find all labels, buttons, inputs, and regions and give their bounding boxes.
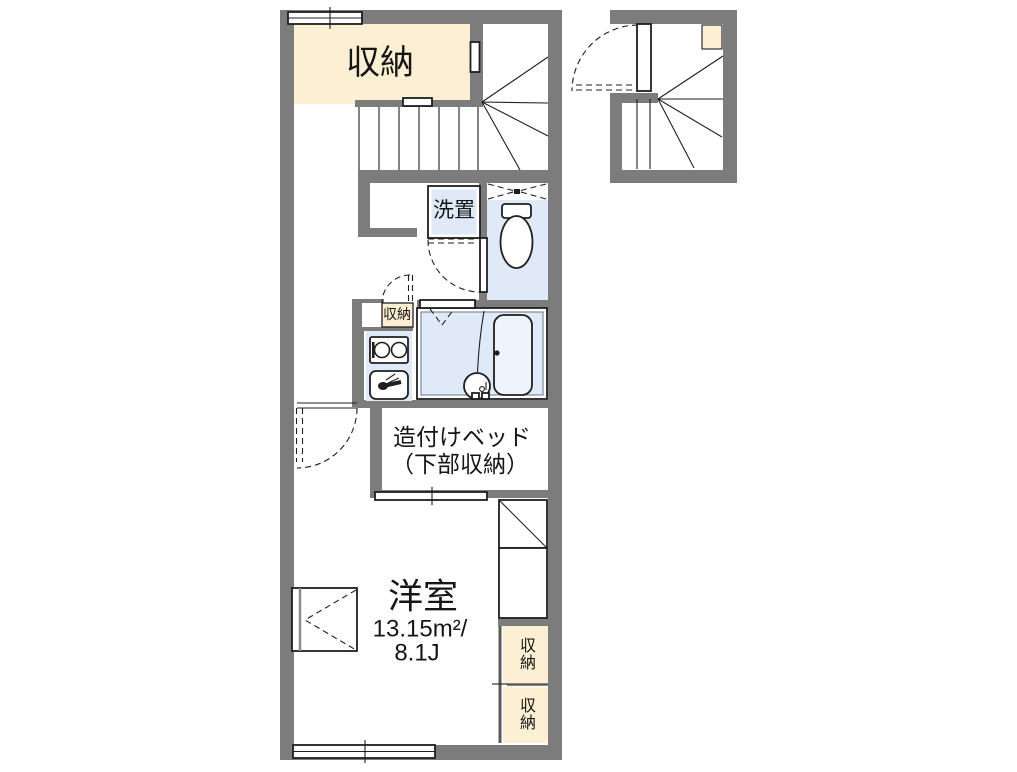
stair-winder-hub [470, 90, 483, 107]
ext-stair-door-dashes [576, 85, 636, 90]
room-name-label: 洋室 [388, 577, 458, 616]
closet-top-label: 収納 [346, 44, 414, 82]
basin-fitting-left [472, 393, 479, 399]
basin-fitting-right [482, 393, 489, 399]
toilet-icon [501, 216, 533, 268]
closet-opening-marker [471, 42, 480, 72]
bed-label-line2: （下部収納） [391, 452, 529, 478]
closet-column-separator-wall [498, 618, 548, 626]
stair-bottom-wall [358, 170, 548, 183]
toilet-door-leaf [480, 238, 487, 292]
external-stairs-icon [572, 10, 737, 183]
ext-stair-bottom-wall [610, 170, 737, 183]
closet-small-door-arc [382, 275, 410, 303]
stair-handrail-marker [403, 98, 432, 106]
ext-stair-left-wall [610, 93, 622, 183]
closet-right-top-label: 収納 [516, 637, 534, 671]
wall-right [548, 10, 562, 760]
closet-small-label: 収納 [383, 307, 411, 323]
ext-stair-hub-stub [610, 93, 658, 103]
washer-label: 洗置 [433, 199, 475, 223]
bed-label-line1: 造付けベッド [393, 425, 531, 451]
floor-plan-drawing [0, 0, 1017, 772]
closet-right-bottom-label: 収納 [516, 697, 534, 731]
room-door-arc [297, 408, 357, 468]
bay-window-box [292, 588, 357, 651]
bathtub-icon [494, 315, 532, 395]
kitchen-nook-white-box [362, 303, 382, 327]
ext-stair-cream-box [702, 25, 722, 49]
white-box [499, 548, 547, 618]
floor-plan: 収納 洗置 収納 造付けベッド （下部収納） 洋室 13.15m²/ 8.1J … [0, 0, 1017, 772]
stair-winder-lines [482, 57, 548, 170]
bathroom [417, 300, 547, 399]
room-door-leaf-dashed [297, 408, 303, 462]
closet-small-door-leaf [409, 275, 413, 303]
stair-treads [359, 107, 478, 170]
bath-door-panel [420, 300, 475, 308]
ext-stair-winder-lines [658, 56, 723, 168]
bed-left-wall [370, 408, 382, 498]
ext-stair-top-wall [610, 10, 737, 24]
room-area-jo-label: 8.1J [394, 641, 439, 668]
hall-wall-stub [358, 228, 417, 237]
hall-door-arc [428, 240, 480, 292]
kitchen-nook-top-wall [352, 299, 384, 303]
bathtub-knob [494, 350, 499, 355]
ext-stair-right-wall [723, 10, 737, 183]
room-door-lintel [297, 403, 357, 408]
sliding-door-rail-icon [375, 487, 487, 505]
ext-stair-door-leaf [637, 24, 651, 91]
bed-top-wall [357, 400, 562, 408]
bay-window-outline [292, 588, 357, 651]
vent-window-center [514, 189, 520, 194]
ext-stair-treads [637, 99, 650, 169]
ext-stair-door-arc [572, 25, 638, 91]
hall-door-leaf-dashed [428, 239, 478, 243]
bed-rail [375, 492, 487, 500]
